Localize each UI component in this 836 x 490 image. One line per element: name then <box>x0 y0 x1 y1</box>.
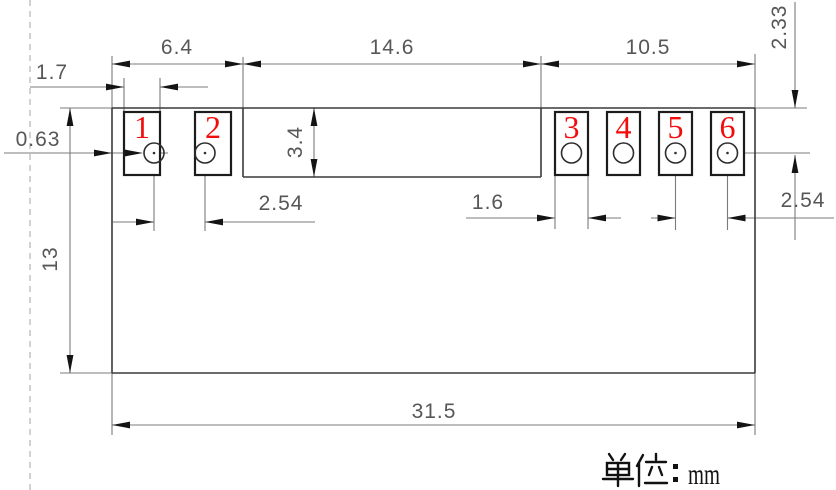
pad-3: 3 <box>555 109 588 175</box>
pad-2: 2 <box>195 109 231 175</box>
dim-left-edge-gap: 0.63 <box>16 128 61 151</box>
unit-colon <box>673 464 678 482</box>
pad-6: 6 <box>711 109 744 175</box>
drawing-canvas: 1 2 3 4 5 6 <box>0 0 836 490</box>
pad-number-6: 6 <box>720 109 736 145</box>
dim-middle-section-width: 14.6 <box>370 36 415 59</box>
unit-cjk-glyph-wei <box>637 454 667 486</box>
pad-number-1: 1 <box>134 109 150 145</box>
dim-right-pad-width: 1.6 <box>472 191 504 214</box>
dim-left-group-width: 6.4 <box>161 36 193 59</box>
pad-4: 4 <box>607 109 640 175</box>
dim-right-hole-pitch: 2.54 <box>781 189 826 212</box>
pad-1: 1 <box>124 109 164 175</box>
unit-cjk-glyph-dan <box>603 454 633 486</box>
dim-overall-width: 31.5 <box>412 400 457 423</box>
pad-number-4: 4 <box>616 109 632 145</box>
unit-text: mm <box>688 458 720 490</box>
unit-label: mm <box>603 454 720 490</box>
pad-number-2: 2 <box>205 109 221 145</box>
cad-dimension-drawing: 1 2 3 4 5 6 <box>0 0 836 490</box>
pad-5: 5 <box>659 109 692 175</box>
pad-number-3: 3 <box>564 109 580 145</box>
pads: 1 2 3 4 5 6 <box>124 109 744 175</box>
dim-body-height: 13 <box>39 246 62 271</box>
dim-pad-row-height: 3.4 <box>284 126 307 158</box>
dim-hole-offset-top: 2.33 <box>768 5 791 50</box>
pad-number-5: 5 <box>668 109 684 145</box>
dimension-labels: 6.4 14.6 10.5 1.7 0.63 3.4 2.33 2.54 1.6… <box>16 5 826 423</box>
dim-right-group-width: 10.5 <box>626 36 671 59</box>
dim-left-hole-pitch: 2.54 <box>259 192 304 215</box>
dim-left-pad-width: 1.7 <box>36 61 68 84</box>
